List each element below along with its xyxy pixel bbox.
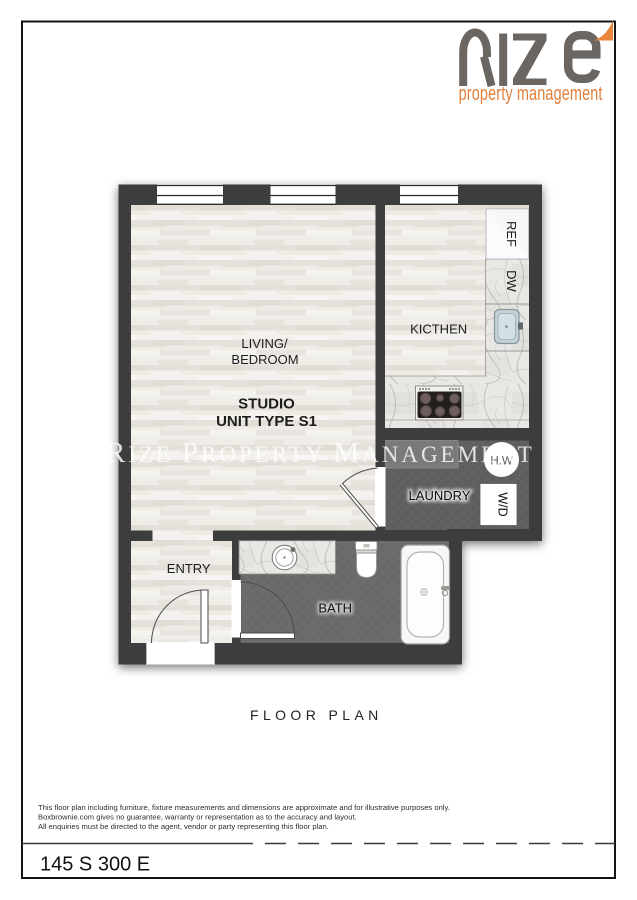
svg-text:LIVING/: LIVING/ — [241, 336, 288, 351]
svg-text:property management: property management — [459, 83, 603, 105]
svg-text:145 S 300 E: 145 S 300 E — [40, 854, 150, 876]
svg-text:KICTHEN: KICTHEN — [410, 321, 467, 336]
svg-text:STUDIO: STUDIO — [238, 396, 295, 413]
svg-text:FLOOR PLAN: FLOOR PLAN — [250, 707, 383, 723]
svg-text:W/D: W/D — [496, 492, 510, 516]
svg-text:LAUNDRY: LAUNDRY — [409, 488, 471, 503]
svg-text:BEDROOM: BEDROOM — [231, 352, 298, 367]
svg-text:ENTRY: ENTRY — [167, 561, 211, 576]
svg-text:All enquiries must be directed: All enquiries must be directed to the ag… — [38, 822, 329, 831]
svg-text:UNIT TYPE S1: UNIT TYPE S1 — [216, 413, 317, 430]
svg-text:BATH: BATH — [318, 601, 352, 616]
svg-text:This floor plan including furn: This floor plan including furniture, fix… — [38, 803, 450, 812]
svg-text:Boxbrownie.com gives no guaran: Boxbrownie.com gives no guarantee, warra… — [38, 813, 357, 822]
svg-text:DW: DW — [504, 270, 519, 292]
svg-text:REF: REF — [504, 221, 519, 247]
svg-text:RIZE PROPERTY MANAGEMENT: RIZE PROPERTY MANAGEMENT — [106, 437, 535, 469]
